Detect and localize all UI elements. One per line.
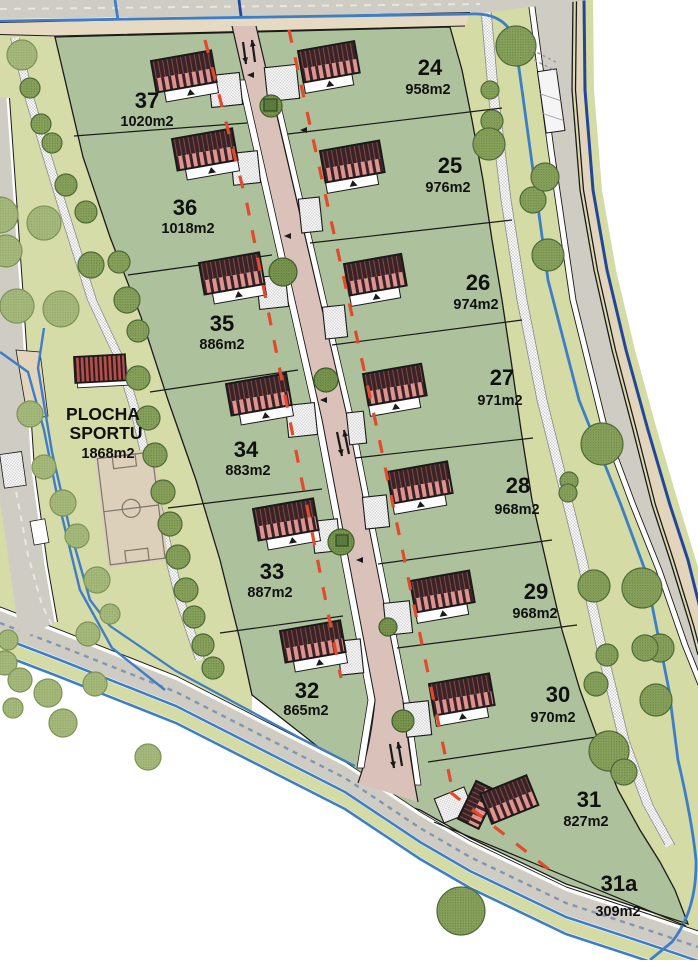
svg-text:883m2: 883m2 xyxy=(225,463,270,479)
svg-text:29: 29 xyxy=(524,579,548,604)
svg-text:974m2: 974m2 xyxy=(453,297,498,313)
svg-text:886m2: 886m2 xyxy=(199,337,244,353)
svg-text:958m2: 958m2 xyxy=(405,82,450,98)
svg-text:28: 28 xyxy=(506,473,530,498)
svg-text:31: 31 xyxy=(577,787,601,812)
svg-text:827m2: 827m2 xyxy=(563,814,608,830)
svg-text:887m2: 887m2 xyxy=(247,585,292,601)
svg-text:976m2: 976m2 xyxy=(425,180,470,196)
svg-text:27: 27 xyxy=(490,365,514,390)
svg-text:37: 37 xyxy=(135,88,159,113)
svg-text:309m2: 309m2 xyxy=(595,904,640,920)
svg-text:25: 25 xyxy=(438,153,462,178)
svg-text:1018m2: 1018m2 xyxy=(161,221,214,237)
svg-text:971m2: 971m2 xyxy=(477,393,522,409)
svg-text:31a: 31a xyxy=(601,871,638,896)
svg-text:968m2: 968m2 xyxy=(512,606,557,622)
svg-text:1868m2: 1868m2 xyxy=(81,446,134,462)
svg-text:32: 32 xyxy=(295,678,319,703)
svg-text:30: 30 xyxy=(546,682,570,707)
svg-text:24: 24 xyxy=(418,55,443,80)
svg-text:34: 34 xyxy=(234,437,259,462)
svg-text:PLOCHA: PLOCHA xyxy=(66,404,140,424)
svg-text:35: 35 xyxy=(210,311,234,336)
svg-text:970m2: 970m2 xyxy=(530,710,575,726)
svg-text:SPORTU: SPORTU xyxy=(70,423,143,443)
svg-text:1020m2: 1020m2 xyxy=(120,114,173,130)
svg-text:968m2: 968m2 xyxy=(494,502,539,518)
svg-text:36: 36 xyxy=(173,195,197,220)
svg-text:865m2: 865m2 xyxy=(283,703,328,719)
svg-text:33: 33 xyxy=(260,559,284,584)
svg-text:26: 26 xyxy=(466,270,490,295)
